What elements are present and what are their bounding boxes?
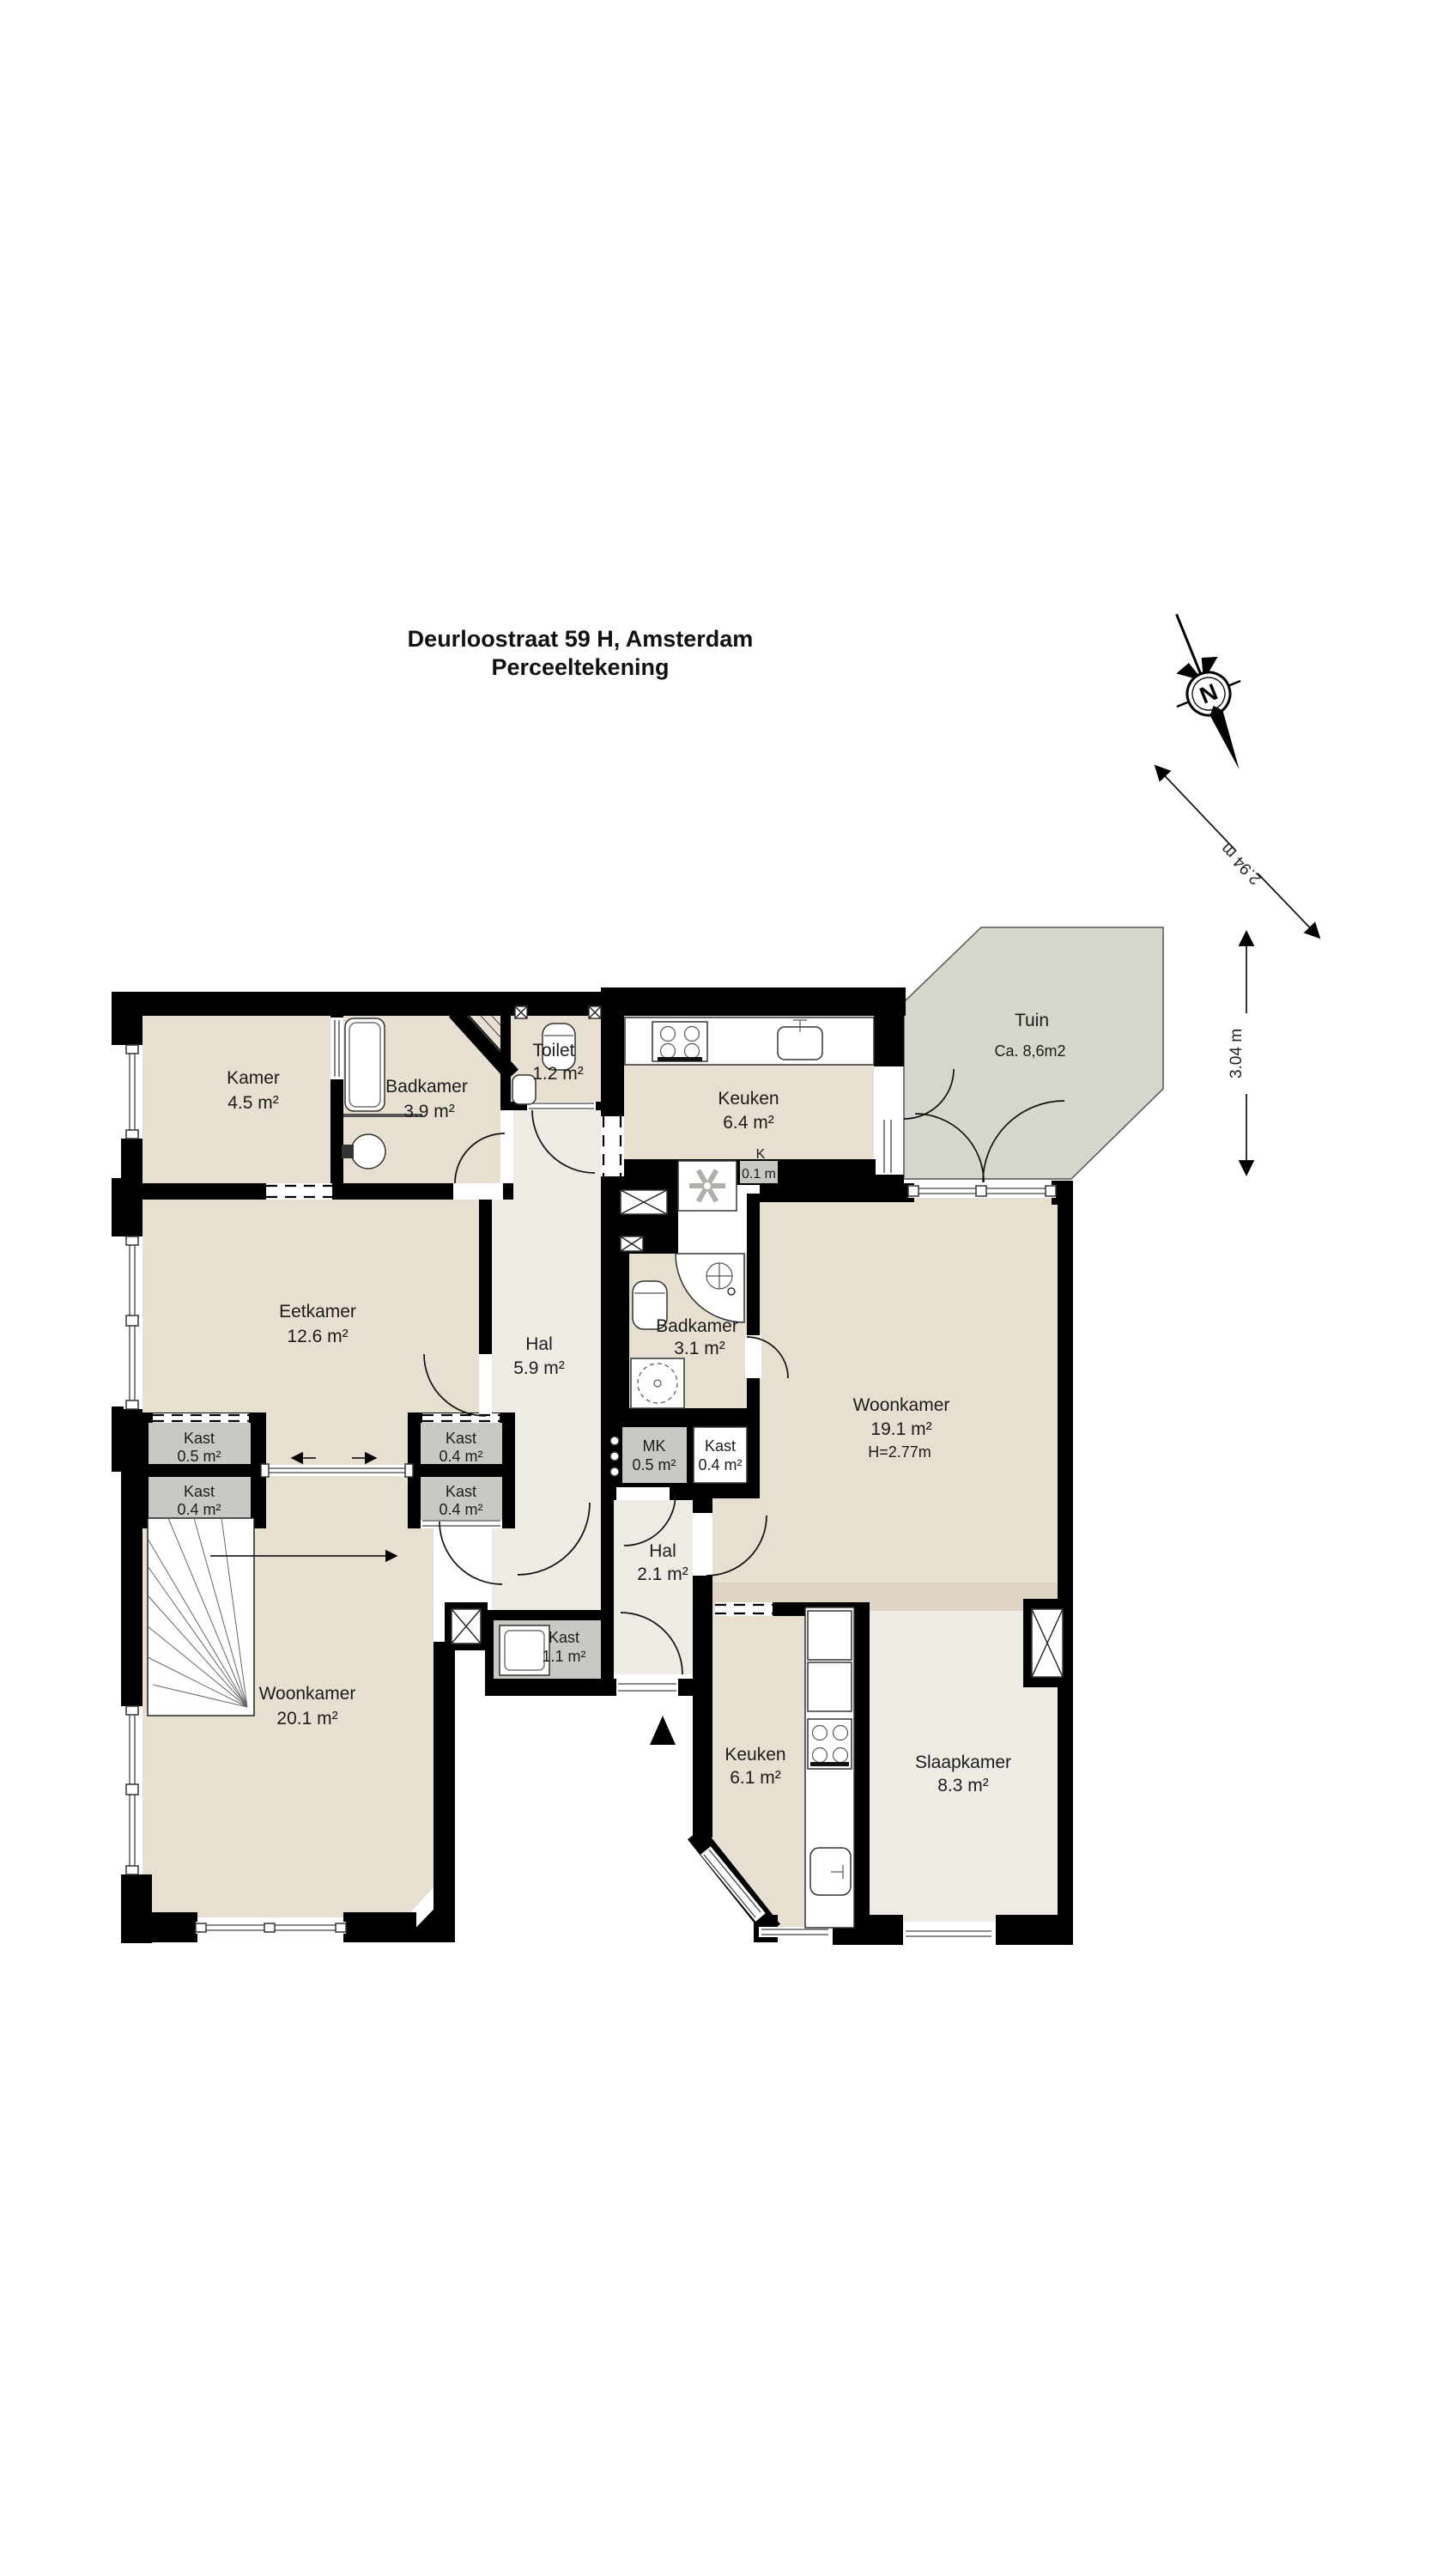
sink-tap-icon (342, 1145, 354, 1158)
room-area-woonkamer-links: 20.1 m² (276, 1709, 337, 1728)
room-area-woonkamer-rechts: 19.1 m² (870, 1419, 931, 1439)
room-label-mk: MK (643, 1437, 666, 1455)
shaft-x-icon (1032, 1609, 1063, 1677)
room-area-kast-hal: 1.1 m² (542, 1648, 585, 1665)
room-label-kast-hal: Kast (549, 1629, 579, 1646)
room-area-badkamer-boven: 3.9 m² (403, 1102, 455, 1121)
room-label-hal-boven: Hal (525, 1334, 553, 1354)
bathtub-icon (345, 1018, 385, 1111)
room-area-badkamer-midden: 3.1 m² (674, 1339, 725, 1358)
room-area-keuken-boven: 6.4 m² (723, 1113, 774, 1133)
room-label-woonkamer-links: Woonkamer (259, 1684, 356, 1704)
room-label-kast-rb: Kast (446, 1430, 476, 1447)
shaft-x-icon (452, 1609, 481, 1643)
measurement-vertical-label: 3.04 m (1228, 1029, 1246, 1078)
room-label-keuken-onder: Keuken (724, 1745, 785, 1765)
room-area-mk: 0.5 m² (632, 1456, 676, 1473)
room-hal-onder (614, 1500, 693, 1674)
room-woonkamer-rechts (747, 1198, 1058, 1584)
room-label-kast-lo: Kast (184, 1483, 215, 1500)
room-area-kast-midden: 0.4 m² (698, 1456, 742, 1473)
room-label-tuin: Tuin (1015, 1011, 1049, 1030)
stove-icon (652, 1022, 707, 1061)
cabinet-icon (808, 1611, 852, 1660)
room-label-badkamer-boven: Badkamer (385, 1077, 468, 1097)
room-area-kast-ro: 0.4 m² (439, 1501, 482, 1518)
room-area-hal-onder: 2.1 m² (637, 1564, 688, 1584)
shaft-x-icon (621, 1236, 643, 1251)
vent-shaft-icon (589, 1006, 601, 1018)
fan-unit-icon (678, 1161, 737, 1211)
room-label-badkamer-midden: Badkamer (656, 1316, 738, 1336)
room-label-eetkamer: Eetkamer (279, 1302, 356, 1321)
room-area-kast-rb: 0.4 m² (439, 1448, 482, 1465)
closet-midden (694, 1427, 747, 1483)
entrance-arrow-icon (650, 1716, 676, 1745)
room-keuken-onder (702, 1606, 807, 1928)
room-label-kamer: Kamer (227, 1068, 280, 1088)
room-area-k: 0.1 m (742, 1167, 776, 1182)
room-label-kast-lb: Kast (184, 1430, 215, 1447)
stove-icon (808, 1719, 852, 1769)
room-passage (266, 1470, 408, 1530)
room-label-woonkamer-rechts: Woonkamer (853, 1395, 950, 1415)
kitchen-sink-icon (810, 1848, 851, 1895)
cabinet-icon (808, 1662, 852, 1711)
room-area-tuin: Ca. 8,6m2 (994, 1042, 1065, 1060)
room-note-woonkamer-rechts: H=2.77m (868, 1443, 931, 1461)
compass-rose-icon: N (1144, 601, 1270, 782)
shaft-x-icon (621, 1190, 667, 1214)
room-area-slaapkamer: 8.3 m² (937, 1776, 989, 1795)
measurement-diagonal: 2.94 m (1155, 766, 1319, 938)
room-label-keuken-boven: Keuken (718, 1089, 779, 1109)
room-area-toilet: 1.2 m² (532, 1064, 584, 1084)
room-area-kast-lb: 0.5 m² (177, 1448, 221, 1465)
room-area-keuken-onder: 6.1 m² (730, 1768, 781, 1788)
room-label-slaapkamer: Slaapkamer (915, 1753, 1011, 1772)
room-area-hal-boven: 5.9 m² (513, 1358, 565, 1378)
room-area-eetkamer: 12.6 m² (287, 1327, 348, 1346)
floorplan-page: Deurloostraat 59 H, Amsterdam Perceeltek… (0, 0, 1449, 2576)
room-label-kast-midden: Kast (705, 1437, 736, 1455)
washing-machine-icon (631, 1358, 684, 1408)
hall-vestibule (513, 1108, 601, 1196)
room-label-k: K (756, 1147, 766, 1162)
room-label-hal-onder: Hal (649, 1541, 676, 1561)
hall-corridor (492, 1196, 601, 1610)
measurement-vertical: 3.04 m (1228, 932, 1246, 1175)
room-area-kast-lo: 0.4 m² (177, 1501, 221, 1518)
room-label-toilet: Toilet (532, 1041, 574, 1060)
room-label-kast-ro: Kast (446, 1483, 476, 1500)
vent-shaft-icon (515, 1006, 527, 1018)
room-area-kamer: 4.5 m² (227, 1093, 279, 1113)
sink-icon (351, 1134, 385, 1169)
measurement-diagonal-label: 2.94 m (1217, 840, 1264, 888)
closet-mk (622, 1427, 687, 1483)
floorplan-drawing: N 2.94 m 3.04 m (0, 0, 1449, 2576)
